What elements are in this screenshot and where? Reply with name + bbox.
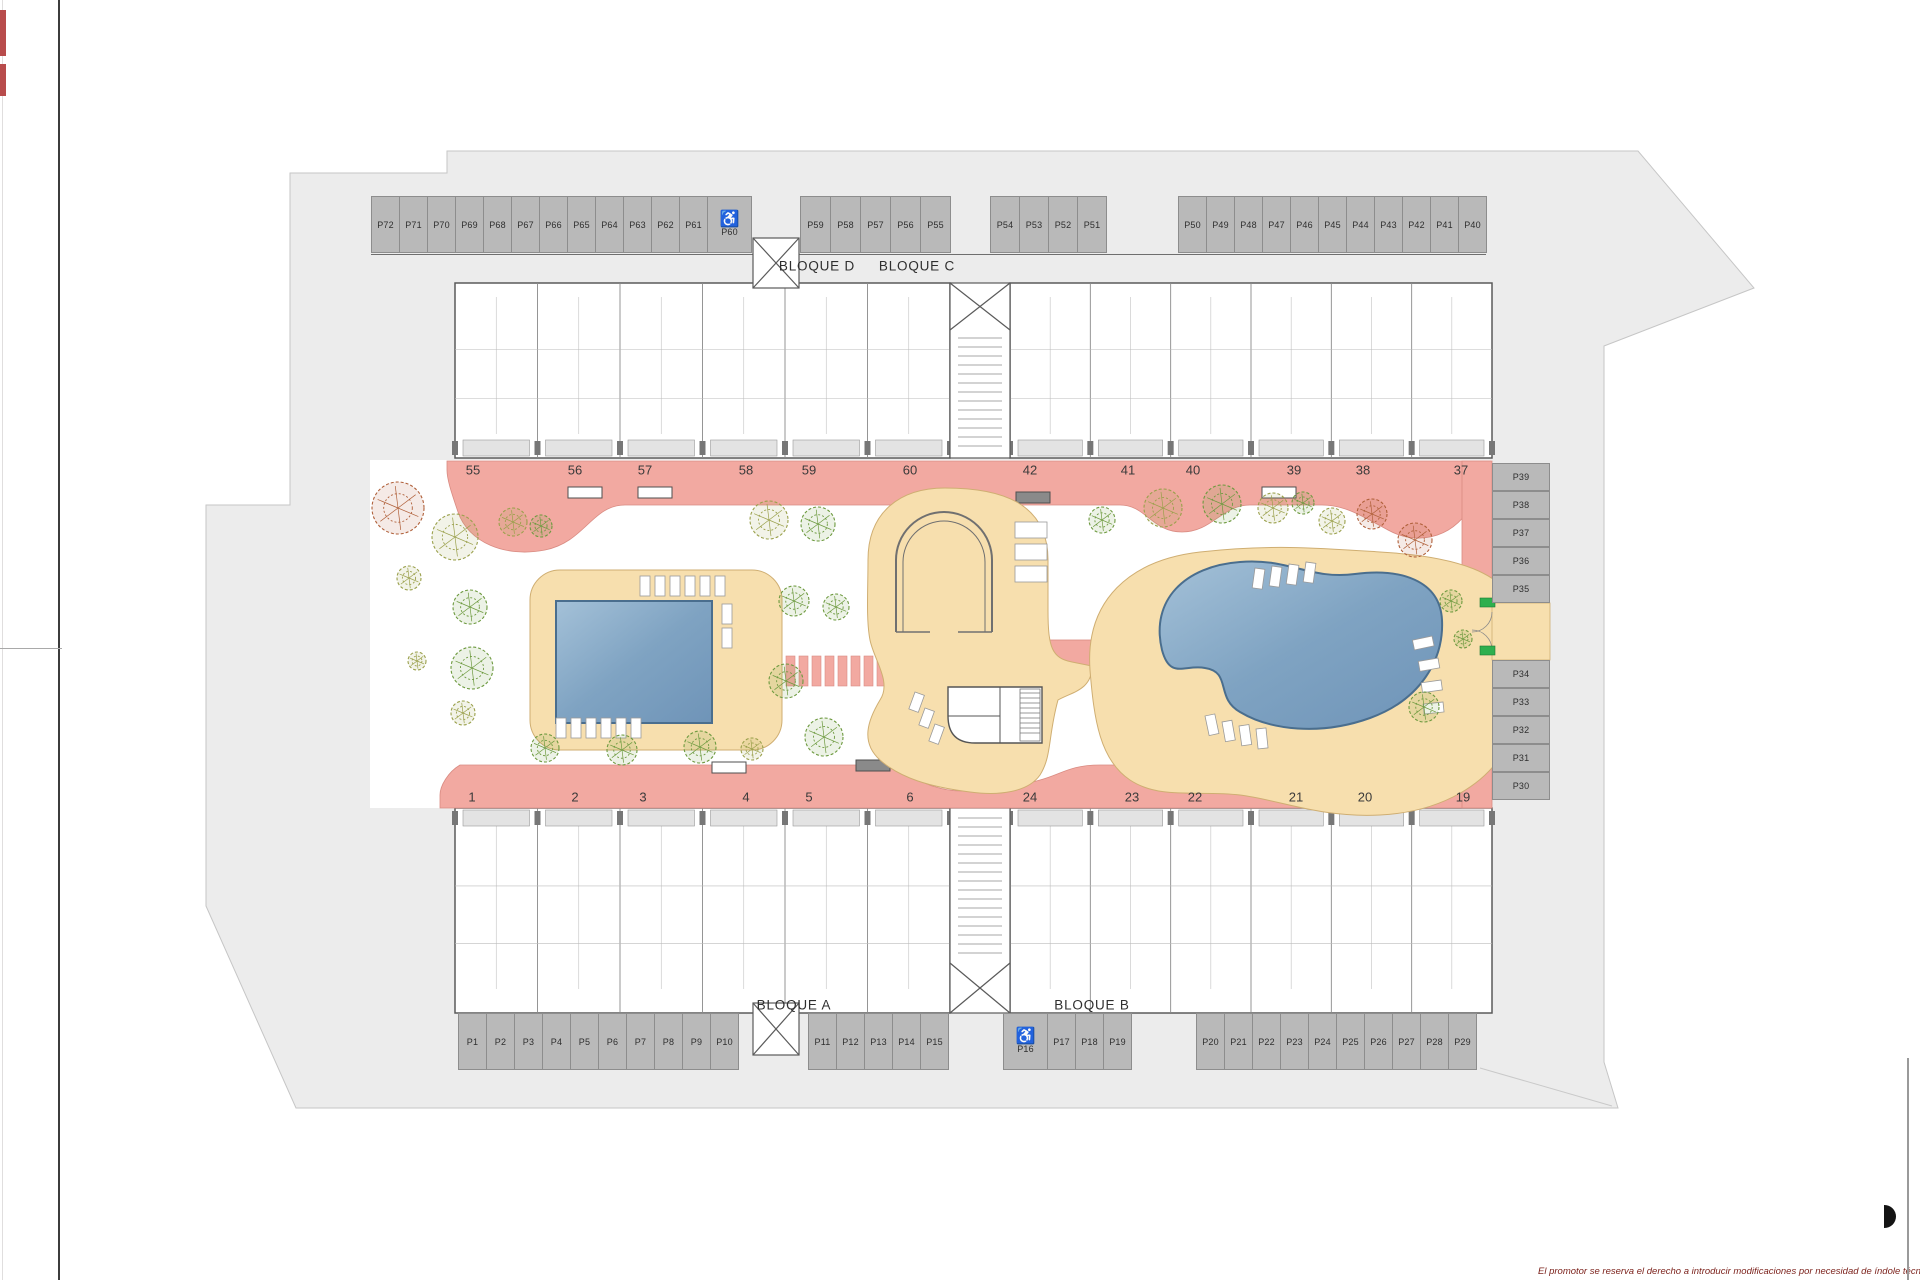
block-label-b: BLOQUE B [1054, 998, 1129, 1013]
tree-icon [779, 586, 809, 616]
tree-icon [530, 515, 552, 537]
tree-icon [1144, 489, 1182, 527]
tree-icon [499, 508, 527, 536]
tree-icon [1292, 492, 1314, 514]
left-tick-line [0, 648, 62, 649]
tree-icon [801, 507, 835, 541]
tree-icon [607, 735, 637, 765]
tree-icon [1398, 523, 1432, 557]
tree-icon [1258, 493, 1288, 523]
tree-icon [1319, 508, 1345, 534]
tree-icon [750, 501, 788, 539]
block-label-a: BLOQUE A [757, 998, 832, 1013]
tree-icon [432, 514, 478, 560]
tree-icon [451, 647, 493, 689]
tree-icon [451, 701, 475, 725]
left-pool-deck [530, 570, 782, 750]
left-rule-line [58, 0, 60, 1280]
tree-icon [397, 566, 421, 590]
tree-icon [1440, 590, 1462, 612]
block-label-d: BLOQUE D [779, 259, 855, 274]
right-rule-line [1907, 1058, 1909, 1280]
site-plan-canvas: P72P71P70P69P68P67P66P65P64P63P62P61♿P60… [0, 0, 1920, 1280]
tree-icon [372, 482, 424, 534]
tree-icon [684, 731, 716, 763]
tree-icon [1203, 485, 1241, 523]
block-label-c: BLOQUE C [879, 259, 955, 274]
tree-icon [823, 594, 849, 620]
tree-icon [1409, 692, 1439, 722]
rect-pool [556, 601, 712, 723]
tree-icon [769, 664, 803, 698]
exit-sign [1480, 598, 1495, 607]
right-pool-deck [1090, 547, 1527, 815]
left-edge-red-mark [0, 10, 6, 56]
tree-icon [1089, 507, 1115, 533]
disclaimer-text: El promotor se reserva el derecho a intr… [1538, 1266, 1920, 1277]
exit-sign [1480, 646, 1495, 655]
tree-icon [741, 738, 763, 760]
site-plan-drawing [0, 0, 1920, 1280]
tree-icon [531, 734, 559, 762]
tree-icon [805, 718, 843, 756]
tree-icon [1454, 630, 1472, 648]
page-edge-line [2, 0, 3, 1280]
left-edge-red-mark [0, 64, 6, 96]
services-building [948, 687, 1042, 743]
tree-icon [408, 652, 426, 670]
tree-icon [1357, 499, 1387, 529]
tree-icon [453, 590, 487, 624]
